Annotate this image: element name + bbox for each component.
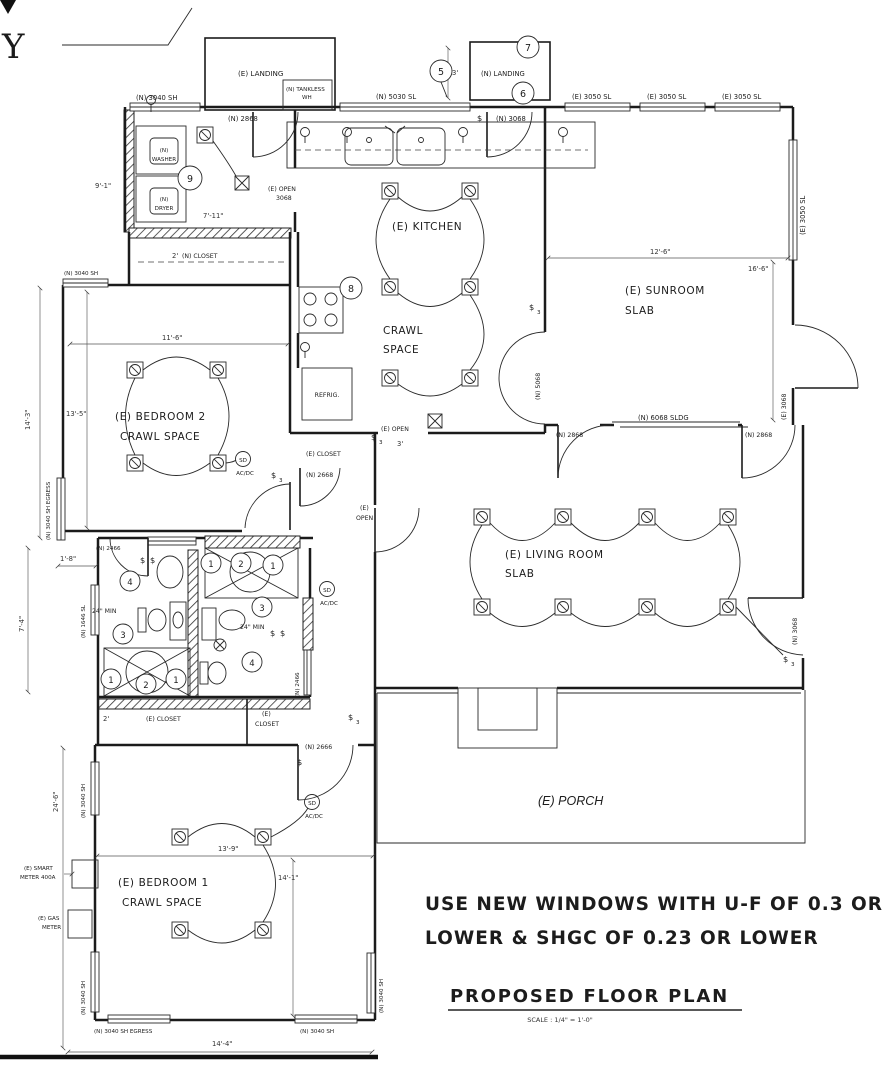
- smoke-detector-bed2: SD AC/DC: [236, 452, 254, 478]
- switch-3way-bed2: $3: [271, 470, 283, 484]
- dryer-label1: (N): [160, 197, 169, 203]
- dim-7-4: 7'-4": [18, 616, 26, 632]
- sunroom-label1: (E) SUNROOM: [625, 285, 705, 297]
- open-hall-label2: OPEN: [356, 515, 374, 522]
- dim-14-3: 14'-3": [24, 410, 32, 430]
- refrig-label: REFRIG.: [315, 392, 340, 399]
- window-egress-bottom-label: (N) 3040 SH EGRESS: [94, 1029, 153, 1035]
- drawing-scale: SCALE : 1/4" = 1'-0": [527, 1016, 593, 1024]
- keynote-9: 9: [178, 166, 202, 190]
- fireplace: [458, 688, 557, 748]
- keynote-8-num: 8: [348, 284, 354, 295]
- window-2466-bath2: [304, 650, 311, 695]
- window-egress-left-label: (N) 3040 SH EGRESS: [46, 481, 52, 540]
- gas-meter-label1: (E) GAS: [38, 916, 60, 922]
- door-hall-living: [375, 508, 419, 552]
- open-laundry-label2: 3068: [276, 195, 292, 202]
- keynote-5: 5: [430, 60, 452, 97]
- dim-24-6: 24'-6": [52, 792, 60, 812]
- door-6068sldg-label: (N) 6068 SLDG: [638, 414, 689, 422]
- switch-symbol: $: [371, 432, 376, 442]
- window-2466-bath: [148, 537, 196, 545]
- switch-symbol: $: [529, 302, 534, 312]
- window-2466-bath-label: (N) 2466: [96, 546, 121, 552]
- washer-label1: (N): [160, 148, 169, 154]
- drawing-title: PROPOSED FLOOR PLAN: [450, 986, 729, 1007]
- door-e3068-label: (E) 3068: [781, 393, 788, 420]
- window-bed1-left-bottom: [91, 952, 99, 1012]
- switch-3way-porch: $3: [783, 654, 795, 668]
- open-hall-label1: (E): [360, 505, 369, 512]
- corner-partial-letter: Y: [1, 27, 25, 67]
- dim-14-1: 14'-1": [278, 874, 298, 882]
- electrical-symbols: SD AC/DC SD AC/DC SD AC/DC $3 $3 $3 $3 $…: [140, 113, 795, 820]
- window-e3050sl-3: [715, 103, 780, 111]
- keynote-6: 6: [512, 82, 534, 104]
- window-3040sh-top-label: (N) 3040 SH: [136, 94, 177, 102]
- bedroom1-label1: (E) BEDROOM 1: [118, 877, 209, 889]
- closet-new-label: (N) CLOSET: [182, 253, 218, 260]
- window-bed1-right: [367, 953, 375, 1013]
- switch-3way-kitchen: $3: [529, 302, 541, 316]
- window-egress-bottom: [108, 1015, 170, 1023]
- dryer: (N) DRYER: [136, 176, 186, 222]
- window-3040sh-top: [130, 103, 200, 111]
- window-5030sl-label: (N) 5030 SL: [376, 93, 416, 101]
- washer: (N) WASHER: [136, 126, 186, 174]
- window-3040sh-bed2-top: [63, 279, 108, 287]
- dim-3-open: 3': [397, 440, 403, 448]
- floor-plan-drawing: Y (E) LANDING (N) TANKLESS WH (N) LANDIN…: [0, 0, 895, 1080]
- dim-24min-right: 24" MIN: [240, 624, 265, 631]
- bedroom2-label1: (E) BEDROOM 2: [115, 411, 206, 423]
- open-laundry-label1: (E) OPEN: [268, 186, 296, 193]
- acdc-label: AC/DC: [236, 471, 254, 477]
- meters: (E) SMART METER 400A (E) GAS METER: [20, 860, 98, 938]
- dim-13-9: 13'-9": [218, 845, 238, 853]
- recessed-lights: [126, 127, 784, 943]
- door-2666-bed1: [298, 745, 353, 800]
- door-2668-label: (N) 2668: [306, 472, 333, 479]
- keynote-num: 4: [127, 578, 132, 588]
- window-3040sh-bottom-right-label: (N) 3040 SH: [300, 1029, 334, 1035]
- window-bed1-left-top: [91, 762, 99, 815]
- sd-label: SD: [308, 801, 316, 807]
- switch-symbol: $: [348, 712, 353, 722]
- door-bedroom2: [245, 482, 290, 530]
- door-2868-laundry-label: (N) 2868: [228, 115, 258, 123]
- switch-sub: 3: [356, 720, 360, 726]
- keynote-5-num: 5: [438, 67, 444, 78]
- sunroom-label2: SLAB: [625, 305, 655, 317]
- window-e3050sl-3-label: (E) 3050 SL: [722, 93, 762, 101]
- washer-label2: WASHER: [152, 157, 176, 163]
- keynote-7: 7: [517, 36, 539, 58]
- range: [299, 287, 343, 333]
- switch-symbol: $: [140, 555, 145, 565]
- dim-16-6: 16'-6": [748, 265, 768, 273]
- sheet-corner-marks: Y: [0, 0, 192, 67]
- closet-bed1b-label2: CLOSET: [255, 721, 279, 728]
- keynote-6-num: 6: [520, 89, 526, 100]
- bedroom2-label2: CRAWL SPACE: [120, 431, 200, 443]
- window-e3050sl-right-label: (E) 3050 SL: [799, 195, 807, 235]
- tankless-wh-label: (N) TANKLESS: [286, 87, 325, 93]
- room-labels: (E) KITCHEN CRAWL SPACE (E) SUNROOM SLAB…: [115, 186, 705, 909]
- crawl-label1: CRAWL: [383, 325, 423, 337]
- kitchen-fixtures: REFRIG.: [287, 122, 595, 420]
- dim-3ft-landing: 3': [452, 69, 458, 77]
- sd-label: SD: [323, 588, 331, 594]
- switch-symbol: $: [270, 628, 275, 638]
- door-5068-label: (N) 5068: [535, 373, 542, 400]
- door-e3068-sunroom: [795, 325, 858, 388]
- keynote-num: 4: [249, 659, 254, 669]
- refrigerator: REFRIG.: [302, 368, 352, 420]
- switch-sub: 3: [791, 662, 795, 668]
- landing-e-label: (E) LANDING: [238, 69, 284, 78]
- dim-9-1: 9'-1": [95, 182, 111, 190]
- door-2868-sun-left-label: (N) 2868: [556, 432, 583, 439]
- title-block: PROPOSED FLOOR PLAN SCALE : 1/4" = 1'-0": [448, 986, 742, 1024]
- notes-block: USE NEW WINDOWS WITH U-F OF 0.3 OR LOWER…: [425, 894, 883, 949]
- smart-meter-label2: METER 400A: [20, 875, 56, 881]
- switch-symbol: $: [150, 555, 155, 565]
- dim-14-4: 14'-4": [212, 1040, 232, 1048]
- window-egress-left: [57, 478, 65, 540]
- note-line1: USE NEW WINDOWS WITH U-F OF 0.3 OR: [425, 894, 883, 915]
- dim-12-6: 12'-6": [650, 248, 670, 256]
- keynote-num: 2: [143, 681, 148, 691]
- keynote-num: 1: [208, 560, 213, 570]
- smoke-detector-hall: SD AC/DC: [320, 582, 338, 608]
- living-label2: SLAB: [505, 568, 535, 580]
- bedroom1-label2: CRAWL SPACE: [122, 897, 202, 909]
- landing-n-label: (N) LANDING: [481, 70, 525, 78]
- window-3040sh-bottom-right: [295, 1015, 357, 1023]
- window-2466-bath2-label: (N) 2466: [295, 672, 301, 697]
- acdc-label: AC/DC: [320, 601, 338, 607]
- switch-symbol: $: [271, 470, 276, 480]
- dim-13-5: 13'-5": [66, 410, 86, 418]
- switch-symbol: $: [477, 113, 482, 123]
- switch-symbol: $: [783, 654, 788, 664]
- window-e3050sl-1: [565, 103, 630, 111]
- closet-hall-label: (E) CLOSET: [306, 451, 341, 458]
- dim-11-6: 11'-6": [162, 334, 182, 342]
- door-2868-sun-right-label: (N) 2868: [745, 432, 772, 439]
- tankless-wh-label2: WH: [302, 95, 312, 101]
- window-bed1-left-bottom-label: (N) 3040 SH: [81, 981, 87, 1015]
- floor-plan-sheet: Y (E) LANDING (N) TANKLESS WH (N) LANDIN…: [0, 0, 895, 1080]
- door-3068-porch-label: (N) 3068: [792, 618, 799, 645]
- keynote-num: 1: [108, 676, 113, 686]
- kitchen-label: (E) KITCHEN: [392, 221, 462, 233]
- switch-sub: 3: [279, 478, 283, 484]
- window-e3050sl-1-label: (E) 3050 SL: [572, 93, 612, 101]
- note-line2: LOWER & SHGC OF 0.23 OR LOWER: [425, 928, 819, 949]
- keynote-num: 1: [173, 676, 178, 686]
- dim-7-11: 7'-11": [203, 212, 223, 220]
- window-e3050sl-right: [789, 140, 797, 260]
- window-bed1-left-top-label: (N) 3040 SH: [81, 784, 87, 818]
- sd-label: SD: [239, 458, 247, 464]
- keynote-9-num: 9: [187, 174, 193, 185]
- window-3040sh-bed2-label: (N) 3040 SH: [64, 271, 98, 277]
- open-crawl-label: (E) OPEN: [381, 426, 409, 433]
- closet-bed1b-label1: (E): [262, 711, 271, 718]
- acdc-label: AC/DC: [305, 814, 323, 820]
- dim-2: 2': [172, 252, 178, 260]
- window-1646sl-label: (N) 1646 SL: [81, 604, 87, 638]
- door-2868-laundry: [253, 112, 298, 157]
- keynote-8: 8: [340, 277, 362, 299]
- smart-meter-label1: (E) SMART: [24, 866, 53, 872]
- porch-label: (E) PORCH: [538, 794, 604, 808]
- switch-sub: 3: [379, 440, 383, 446]
- closet-bed1a-label: (E) CLOSET: [146, 716, 181, 723]
- dryer-label2: DRYER: [155, 206, 174, 212]
- switch-symbol: $: [297, 757, 302, 767]
- crawl-label2: SPACE: [383, 344, 419, 356]
- dimensions: 9'-1" 7'-11" 2' 12'-6" 16'-6" 11'-6" 13'…: [18, 182, 788, 1052]
- dim-24min-left: 24" MIN: [92, 608, 117, 615]
- gas-meter-label2: METER: [42, 925, 61, 931]
- door-2666-label: (N) 2666: [305, 744, 332, 751]
- keynote-7-num: 7: [525, 43, 531, 54]
- keynote-num: 3: [259, 604, 264, 614]
- living-label1: (E) LIVING ROOM: [505, 549, 604, 561]
- window-e3050sl-2: [640, 103, 705, 111]
- switch-3way-closet: $3: [348, 712, 360, 726]
- switch-sub: 3: [537, 310, 541, 316]
- keynote-num: 1: [270, 562, 275, 572]
- window-5030sl: [340, 103, 470, 111]
- keynote-num: 2: [238, 560, 243, 570]
- keynote-num: 3: [120, 631, 125, 641]
- window-bed1-right-label: (N) 3040 SH: [379, 979, 385, 1013]
- window-e3050sl-2-label: (E) 3050 SL: [647, 93, 687, 101]
- switch-symbol: $: [280, 628, 285, 638]
- dim-1-8: 1'-8": [60, 555, 76, 563]
- dim-2-closet: 2': [103, 715, 109, 723]
